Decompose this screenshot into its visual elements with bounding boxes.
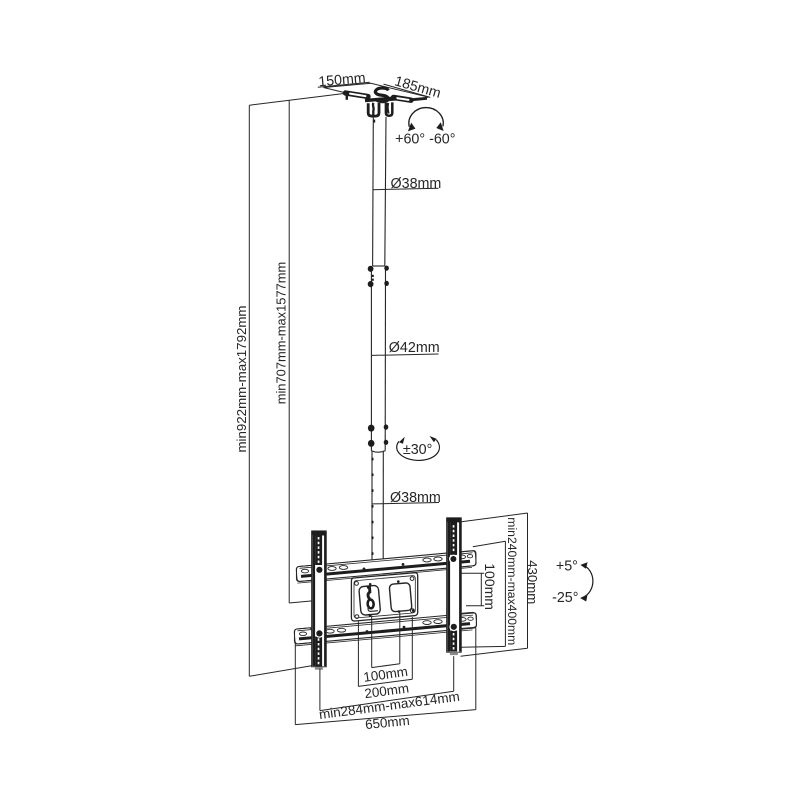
svg-text:Ø42mm: Ø42mm [389,340,440,356]
svg-text:min240mm-max400mm: min240mm-max400mm [505,517,519,645]
svg-text:100mm: 100mm [482,563,498,610]
svg-text:430mm: 430mm [525,560,540,604]
svg-text:-25°: -25° [552,590,578,606]
svg-text:±30°: ±30° [403,442,432,458]
svg-text:+60° -60°: +60° -60° [395,131,455,147]
svg-text:+5°: +5° [556,558,578,574]
svg-text:min922mm-max1792mm: min922mm-max1792mm [234,305,249,452]
svg-text:min707mm-max1577mm: min707mm-max1577mm [274,262,289,405]
